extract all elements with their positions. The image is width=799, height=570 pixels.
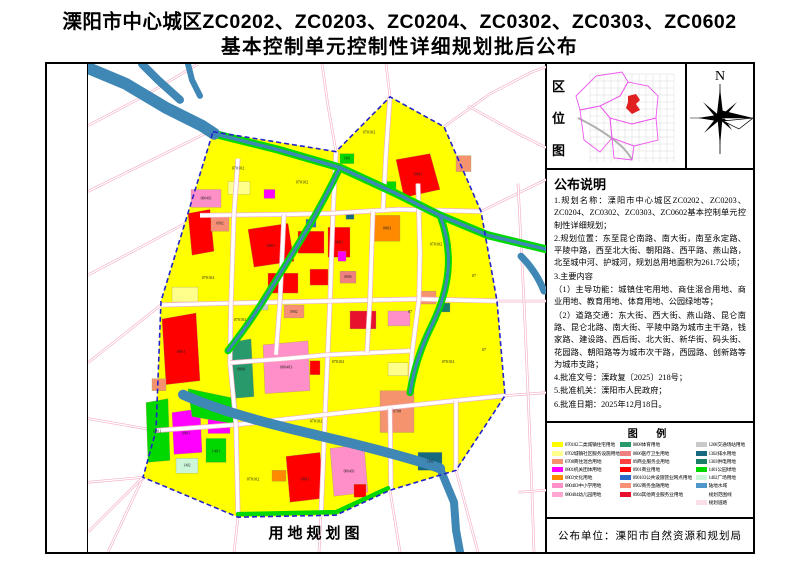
legend-label: 规划范围线 [709,491,732,498]
legend-label: 080404幼儿园用地 [565,491,601,498]
legend-item: 0801机关团体用地 [552,467,620,473]
parcel [228,182,250,195]
legend-item: 陆地水域 [696,483,750,489]
legend-label: 0801机关团体用地 [565,466,601,473]
legend-label: 080403中小学用地 [565,482,601,489]
compass-box: N [687,64,753,168]
announcement-text: 1.规划名称：溧阳市中心城区ZC0202、ZC0203、ZC0204、ZC030… [554,195,746,411]
ring-road [578,118,632,160]
legend-item: 1303供电用地 [696,458,750,464]
parcel [172,287,198,302]
legend-swatch [696,475,707,480]
legend-label: 0901商业用地 [633,466,660,473]
legend-item: 1208交通场站用地 [696,442,750,448]
parcel-label: 0803 [383,225,391,230]
location-map-box: 区 位 图 [547,64,687,168]
legend-item: 0803文化用地 [552,475,620,481]
legend-label: 1402广场用地 [709,474,736,481]
legend-heading: 图 例 [552,425,750,440]
location-label-char: 位 [552,108,565,127]
legend-item: 规划道路 [696,499,750,505]
legend-swatch [620,492,631,497]
parcel-label: 070102 [247,476,260,481]
legend-item: 080403中小学用地 [552,483,620,489]
parcel-label: 070102 [442,359,455,364]
legend-swatch [620,451,631,456]
legend-item: 0904其他商业服务业用地 [620,491,696,497]
map-panel: 0701020901140107010207010208040309020901… [47,64,547,552]
parcel [310,269,328,285]
location-compass-row: 区 位 图 [547,64,753,170]
map-caption: 用地规划图 [87,522,545,543]
parcel [264,189,275,198]
legend-box: 图 例 070102二类城镇住宅用地0702城镇社区服务设施用地0708商住混合… [547,423,753,519]
legend-swatch [696,500,707,505]
legend-label: 0904其他商业服务业用地 [633,491,683,498]
parcel-label: 0901 [414,172,422,177]
legend-swatch [552,442,563,447]
land-use-map: 0701020901140107010207010208040309020901… [87,64,546,552]
north-arrow-icon: N [687,64,753,168]
legend-label: 1303供电用地 [709,458,736,465]
legend-item: 0808体育用地 [620,442,696,448]
legend-items: 070102二类城镇住宅用地0702城镇社区服务设施用地0708商住混合用地08… [552,442,750,505]
legend-swatch [552,492,563,497]
parcel [388,363,408,376]
parcel-label: 080403 [344,469,355,473]
legend-swatch [552,451,563,456]
legend-label: 1401公园绿地 [709,466,736,473]
legend-label: 090103公共设施营业网点用地 [633,474,692,481]
legend-label: 0702城镇社区服务设施用地 [565,450,620,457]
legend-item: 070102二类城镇住宅用地 [552,442,620,448]
parcel [354,484,366,497]
legend-label: 0902商务金融用地 [633,482,669,489]
parcel-label: 070102 [430,241,443,246]
info-panel: 区 位 图 [547,64,753,552]
parcel [338,251,346,261]
legend-swatch [620,467,631,472]
district-boundary [580,106,612,152]
page-title: 溧阳市中心城区ZC0202、ZC0203、ZC0204、ZC0302、ZC030… [0,10,799,60]
legend-item: 1302排水用地 [696,450,750,456]
legend-swatch [620,442,631,447]
location-label-char: 图 [552,140,565,159]
location-map [569,66,683,166]
parcel-label: 0902 [216,221,223,225]
legend-label: 1302排水用地 [709,450,736,457]
announcement-paragraph: 4.批准文号：溧政复〔2025〕218号； [554,372,746,384]
parcel-label: 07 [408,309,412,314]
legend-swatch [552,459,563,464]
legend-item: 0708商住混合用地 [552,458,620,464]
parcel-label: 080403 [280,365,293,370]
legend-item: 09商业服务业用地 [620,458,696,464]
announcement-paragraph: 1.规划名称：溧阳市中心城区ZC0202、ZC0203、ZC0204、ZC030… [554,195,746,232]
legend-label: 0808体育用地 [633,441,660,448]
legend-label: 09商业服务业用地 [633,458,670,465]
legend-label: 0708商住混合用地 [565,458,601,465]
parcel-label: 070102 [232,166,245,171]
parcel-label: 0708 [393,409,401,414]
legend-swatch [620,483,631,488]
parcel-label: 0808 [237,367,245,372]
parcel [350,311,376,329]
parcel-label: 070102 [296,180,309,185]
legend-item: 0902商务金融用地 [620,483,696,489]
legend-item: 080404幼儿园用地 [552,491,620,497]
legend-item: 0901商业用地 [620,467,696,473]
parcel-label: 1402 [183,463,190,467]
legend-label: 1208交通场站用地 [709,441,745,448]
parcel-label: 070102 [332,359,345,364]
district-boundary [576,72,628,110]
parcel-label: 0901 [335,239,343,244]
legend-label: 0803文化用地 [565,474,592,481]
parcel-label: 0901 [301,476,309,481]
legend-swatch [696,493,707,495]
legend-swatch [620,475,631,480]
legend-item: 090103公共设施营业网点用地 [620,475,696,481]
parcel [310,361,320,375]
content-frame: 0701020901140107010207010208040309020901… [45,62,755,554]
parcel-label: 07 [482,347,486,352]
legend-column: 0808体育用地0806医疗卫生用地09商业服务业用地0901商业用地09010… [620,442,696,505]
parcel-label: 070102 [310,419,323,424]
parcel-label: 1401 [153,428,161,433]
parcel [388,311,410,326]
parcel-label: 1401 [212,448,220,453]
legend-swatch [552,467,563,472]
legend-item: 0806医疗卫生用地 [620,450,696,456]
parcel [272,470,286,481]
publisher-text: 公布单位：溧阳市自然资源和规划局 [558,528,742,543]
legend-swatch [696,442,707,447]
parcel-label: 070102 [234,317,247,322]
legend-label: 陆地水域 [709,482,727,489]
parcel-label: 070102 [363,130,376,135]
legend-column: 1208交通场站用地1302排水用地1303供电用地1401公园绿地1402广场… [696,442,750,505]
legend-item: 1402广场用地 [696,475,750,481]
legend-swatch [552,483,563,488]
parcel-label: 080403 [201,196,212,200]
parcel-label: 0801 [182,430,190,435]
title-line-2: 基本控制单元控制性详细规划批后公布 [0,35,799,60]
announcement-paragraph: 5.批准机关：溧阳市人民政府； [554,385,746,397]
legend-item: 1401公园绿地 [696,467,750,473]
legend-item: 规划范围线 [696,491,750,497]
parcel-label: 1302 [426,459,433,463]
legend-swatch [696,451,707,456]
parcel-label: 0901 [177,349,185,354]
legend-swatch [552,475,563,480]
parcel-label: 07 [472,273,476,278]
legend-label: 070102二类城镇住宅用地 [565,441,615,448]
legend-swatch [696,483,707,488]
title-line-1: 溧阳市中心城区ZC0202、ZC0203、ZC0204、ZC0302、ZC030… [0,10,799,35]
parcel-label: 0806 [344,275,351,279]
announcement-paragraph: 3.主要内容 [554,271,746,283]
parcel-label: 0902 [290,310,297,314]
location-map-label: 区 位 图 [552,76,565,159]
legend-item: 0702城镇社区服务设施用地 [552,450,620,456]
legend-column: 070102二类城镇住宅用地0702城镇社区服务设施用地0708商住混合用地08… [552,442,620,505]
legend-swatch [696,467,707,472]
parcel-label: 070102 [202,275,215,280]
location-label-char: 区 [552,76,565,95]
announcement-box: 公布说明 1.规划名称：溧阳市中心城区ZC0202、ZC0203、ZC0204、… [547,170,753,423]
announcement-heading: 公布说明 [554,174,746,193]
north-label: N [715,69,725,84]
announcement-paragraph: （1）主导功能：城镇住宅用地、商住混合用地、商业用地、教育用地、体育用地、公园绿… [554,284,746,309]
poster-page: 溧阳市中心城区ZC0202、ZC0203、ZC0204、ZC0302、ZC030… [0,0,799,570]
parcel-label: 1401 [343,157,350,161]
legend-swatch [620,459,631,464]
parcel [152,379,166,391]
legend-label: 规划道路 [709,499,727,506]
announcement-paragraph: （2）道路交通：东大街、西大街、燕山路、昆仑南路、昆仑北路、南大街、平陵中路为城… [554,310,746,371]
announcement-paragraph: 6.批准日期：2025年12月18日。 [554,399,746,411]
parcel-label: 0901 [267,243,275,248]
announcement-paragraph: 2.规划位置：东至昆仑南路、南大街，南至永定路、平陵中路，西至北大街、朝阳路、西… [554,233,746,270]
planning-area-highlight [626,94,640,114]
legend-label: 0806医疗卫生用地 [633,450,669,457]
legend-swatch [696,459,707,464]
publisher-box: 公布单位：溧阳市自然资源和规划局 [547,519,753,552]
